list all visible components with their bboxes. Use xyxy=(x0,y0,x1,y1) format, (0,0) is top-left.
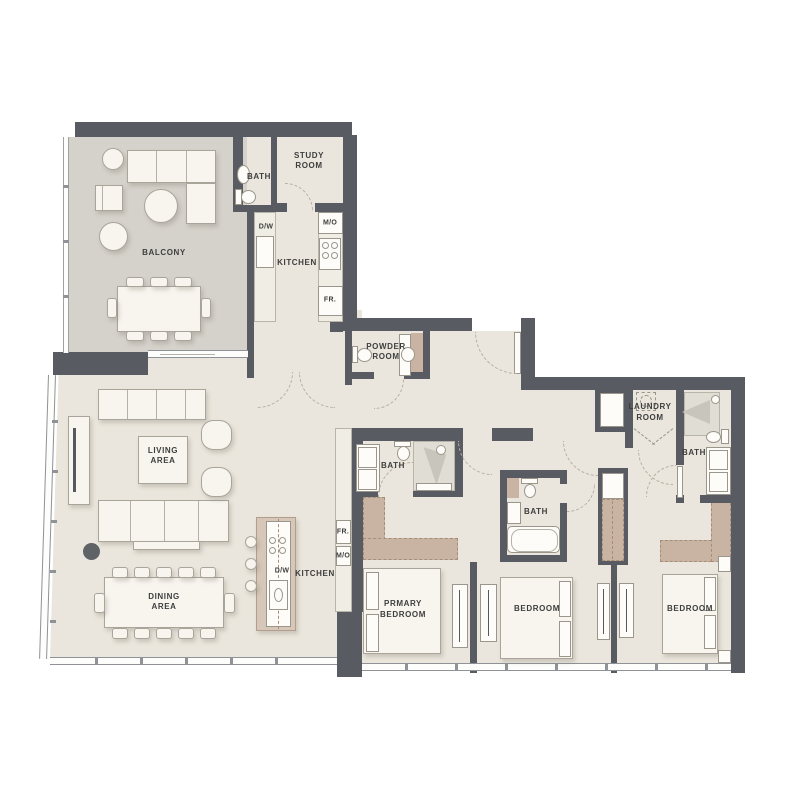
island-sink-basin xyxy=(274,588,283,602)
dining-chair xyxy=(156,628,172,639)
balcony-chair xyxy=(150,277,168,287)
armchair-2 xyxy=(201,467,232,497)
kitchen-label: KITCHEN xyxy=(295,570,335,578)
balcony-coffee-table xyxy=(144,189,178,223)
balcony-sofa-right xyxy=(186,183,216,224)
burner xyxy=(279,537,286,544)
balcony-chair xyxy=(174,331,192,341)
bedroom2-label: BEDROOM xyxy=(514,605,560,613)
wardrobe-shelf xyxy=(602,473,624,499)
dining-chair xyxy=(200,567,216,578)
wall-corridor-top xyxy=(535,377,745,390)
dining-chair xyxy=(178,628,194,639)
wall-bath3-bottom xyxy=(700,495,731,503)
burner xyxy=(279,547,286,554)
wall-bedroomwing-top-a xyxy=(350,428,455,441)
wall-bath2-right-cap xyxy=(560,470,567,484)
bath2-tub-inner xyxy=(511,529,558,552)
window-tick xyxy=(50,570,56,573)
wall-study-bottom-b xyxy=(315,203,343,212)
primarybath-toilet-bowl xyxy=(397,446,410,461)
window-tick xyxy=(185,658,188,664)
bath3-toilet-bowl xyxy=(706,431,721,443)
bar-stool xyxy=(245,536,257,548)
mirror-line xyxy=(459,590,460,642)
burner xyxy=(331,242,338,249)
dining-chair xyxy=(200,628,216,639)
window-tick xyxy=(405,664,408,670)
balcony-round-chair xyxy=(99,222,128,251)
bathtop-toilet-bowl xyxy=(241,190,256,204)
dining-chair xyxy=(178,567,194,578)
bath2-label: BATH xyxy=(524,508,548,516)
wall-right-outer xyxy=(731,388,745,673)
armchair-1 xyxy=(201,420,232,450)
window-tick xyxy=(95,658,98,664)
primary-bedroom-label-2: BEDROOM xyxy=(380,611,426,619)
window-tick xyxy=(50,620,56,623)
sofa-ottoman xyxy=(133,541,200,550)
living-area-label-1: LIVING xyxy=(148,447,178,455)
wall-powder-right xyxy=(423,331,430,377)
dining-chair xyxy=(134,628,150,639)
window-tick xyxy=(52,420,58,423)
window-tick xyxy=(655,664,658,670)
primary-dresser xyxy=(452,584,468,648)
wall-bath1-bottom-right xyxy=(413,490,462,497)
pillow xyxy=(559,581,571,617)
bath2-toilet-bowl xyxy=(524,484,536,498)
wall-powder-top xyxy=(343,318,472,331)
wardrobe-centerline xyxy=(612,501,614,559)
kitchentop-fr-label: FR. xyxy=(324,297,336,304)
dining-area-label-1: DINING xyxy=(148,593,180,601)
window-tick xyxy=(705,664,708,670)
kitchen-mo-label: M/O xyxy=(336,553,350,560)
laundry-room-label-2: ROOM xyxy=(636,414,663,422)
burner xyxy=(269,547,276,554)
sofa-cushion-line xyxy=(198,501,199,541)
balcony-chair xyxy=(107,298,117,318)
wall-top xyxy=(75,122,352,137)
dining-area-label-2: AREA xyxy=(151,603,176,611)
shower-spray-cone xyxy=(682,400,710,424)
sofa-cushion-line xyxy=(156,151,157,182)
balcony-chair xyxy=(150,331,168,341)
pillow xyxy=(366,614,379,652)
powder-room-label-1: POWDER xyxy=(366,343,406,351)
sofa-cushion-line xyxy=(185,390,186,419)
tv-console xyxy=(68,416,90,505)
window-tick xyxy=(505,664,508,670)
dining-chair xyxy=(224,593,235,613)
bath3-sink-1 xyxy=(709,450,728,470)
wall-entry-side xyxy=(521,318,535,390)
balcony-chair xyxy=(126,331,144,341)
wall-bath-study-divider xyxy=(271,135,277,205)
structural-column xyxy=(83,543,100,560)
bath3-toilet-tank xyxy=(721,429,729,444)
sofa-cushion-line xyxy=(186,151,187,182)
sofa-top xyxy=(98,389,206,420)
burner xyxy=(269,537,276,544)
burner xyxy=(331,252,338,259)
bath3-label: BATH xyxy=(682,449,706,457)
bath3-shower-head xyxy=(711,395,720,404)
wall-bottom-pier xyxy=(337,608,362,677)
wall-divider-primary-bed2 xyxy=(470,562,477,673)
window-tick xyxy=(605,664,608,670)
bath3-sink-2 xyxy=(709,472,728,492)
wall-divider-bed2-bed3 xyxy=(611,565,617,673)
window-wall-bottom-left xyxy=(50,657,337,665)
window-tick xyxy=(63,240,69,243)
bar-stool xyxy=(245,580,257,592)
bath-top-label: BATH xyxy=(247,173,271,181)
pillow xyxy=(704,615,716,649)
balcony-chair xyxy=(174,277,192,287)
wall-bath1-right xyxy=(455,428,463,497)
window-tick xyxy=(63,295,69,298)
window-tick xyxy=(555,664,558,670)
balcony-label: BALCONY xyxy=(142,249,186,257)
balcony-rail xyxy=(63,137,69,353)
window-tick xyxy=(275,658,278,664)
wall-living-top-left xyxy=(53,352,148,375)
armchair-line xyxy=(102,186,103,210)
wall-right-upper xyxy=(343,135,357,331)
kitchentop-dw-unit xyxy=(256,236,274,268)
tv xyxy=(73,428,76,492)
window-tick xyxy=(63,185,69,188)
dining-chair xyxy=(94,593,105,613)
primarybath-sink-2 xyxy=(358,469,377,490)
mirror-line xyxy=(626,589,627,632)
kitchentop-dw-label: D/W xyxy=(259,224,274,231)
primary-bedroom-label-1: PRMARY xyxy=(384,600,422,608)
sofa-cushion-line xyxy=(130,501,131,541)
window-tick xyxy=(140,658,143,664)
wall-powder-bottom-left xyxy=(345,372,374,379)
bath2-sink xyxy=(507,502,521,524)
bedroom3-closet-vertical xyxy=(711,498,731,562)
balcony-sofa-top xyxy=(127,150,216,183)
balcony-armchair xyxy=(95,185,123,211)
bath3-door-leaf xyxy=(677,466,683,498)
window-tick xyxy=(455,664,458,670)
primary-bath-label: BATH xyxy=(381,462,405,470)
wall-bedroomwing-top-b xyxy=(492,428,533,441)
kitchen-fr-label: FR. xyxy=(337,529,349,536)
bath2-entry-cabinet xyxy=(507,478,519,498)
burner xyxy=(322,242,329,249)
dining-chair xyxy=(112,628,128,639)
mirror-line xyxy=(488,590,489,636)
dining-chair xyxy=(156,567,172,578)
hall-closet-interior xyxy=(600,393,624,427)
window-tick xyxy=(51,520,57,523)
dining-chair xyxy=(112,567,128,578)
sliding-door-panel xyxy=(160,354,215,356)
burner xyxy=(322,252,329,259)
wall-kitchen-left xyxy=(247,205,254,378)
window-tick xyxy=(230,658,233,664)
kitchen-dw-label: D/W xyxy=(275,568,290,575)
kitchentop-label: KITCHEN xyxy=(277,259,317,267)
balcony-side-table xyxy=(102,148,124,170)
pillow xyxy=(366,572,379,610)
powder-room-label-2: ROOM xyxy=(372,353,399,361)
bedroom3-nightstand-top xyxy=(718,556,731,572)
kitchentop-mo-label: M/O xyxy=(323,220,337,227)
balcony-dining-table xyxy=(117,286,201,332)
primary-closet-horizontal xyxy=(363,538,458,560)
wall-bath2-left xyxy=(500,470,507,562)
study-room-label-2: ROOM xyxy=(295,162,322,170)
primarybath-sink-1 xyxy=(358,447,377,468)
primarybath-shower-head xyxy=(436,445,446,455)
pillow xyxy=(559,621,571,657)
balcony-chair xyxy=(201,298,211,318)
bar-stool xyxy=(245,558,257,570)
dining-chair xyxy=(134,567,150,578)
study-room-label-1: STUDY xyxy=(294,152,324,160)
wall-bath2-right-lower xyxy=(560,503,567,562)
window-wall-bottom-right xyxy=(362,663,731,671)
sofa-cushion-line xyxy=(156,390,157,419)
sofa-cushion-line xyxy=(164,501,165,541)
balcony-chair xyxy=(126,277,144,287)
mirror-line xyxy=(603,589,604,634)
primarybath-shower-bench xyxy=(416,483,452,491)
bedroom3-label: BEDROOM xyxy=(667,605,713,613)
wall-bath2-bottom xyxy=(500,555,567,562)
window-tick xyxy=(52,470,58,473)
bedroom3-nightstand-bottom xyxy=(718,650,731,663)
wall-bath2-top xyxy=(500,470,567,478)
laundry-room-label-1: LAUNDRY xyxy=(628,403,671,411)
sofa-cushion-line xyxy=(127,390,128,419)
living-area-label-2: AREA xyxy=(150,457,175,465)
floor-plan: BALCONY BATH STUDY ROOM D/W M/O KITCHEN … xyxy=(0,0,800,800)
wall-bath-top-bottom xyxy=(233,205,277,212)
